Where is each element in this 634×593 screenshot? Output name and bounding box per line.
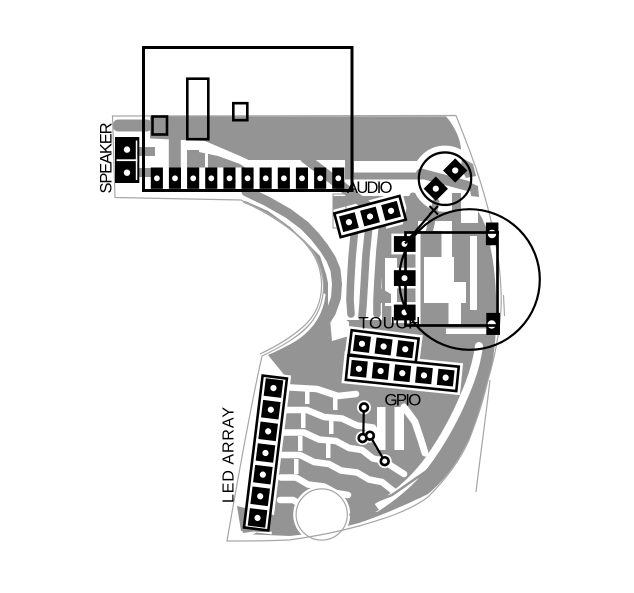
svg-text:TOUCH: TOUCH bbox=[358, 314, 420, 333]
svg-text:LED ARRAY: LED ARRAY bbox=[221, 407, 238, 503]
svg-text:AUDIO: AUDIO bbox=[347, 179, 393, 197]
svg-text:SPEAKER: SPEAKER bbox=[98, 122, 116, 193]
svg-text:GPIO: GPIO bbox=[384, 390, 421, 409]
